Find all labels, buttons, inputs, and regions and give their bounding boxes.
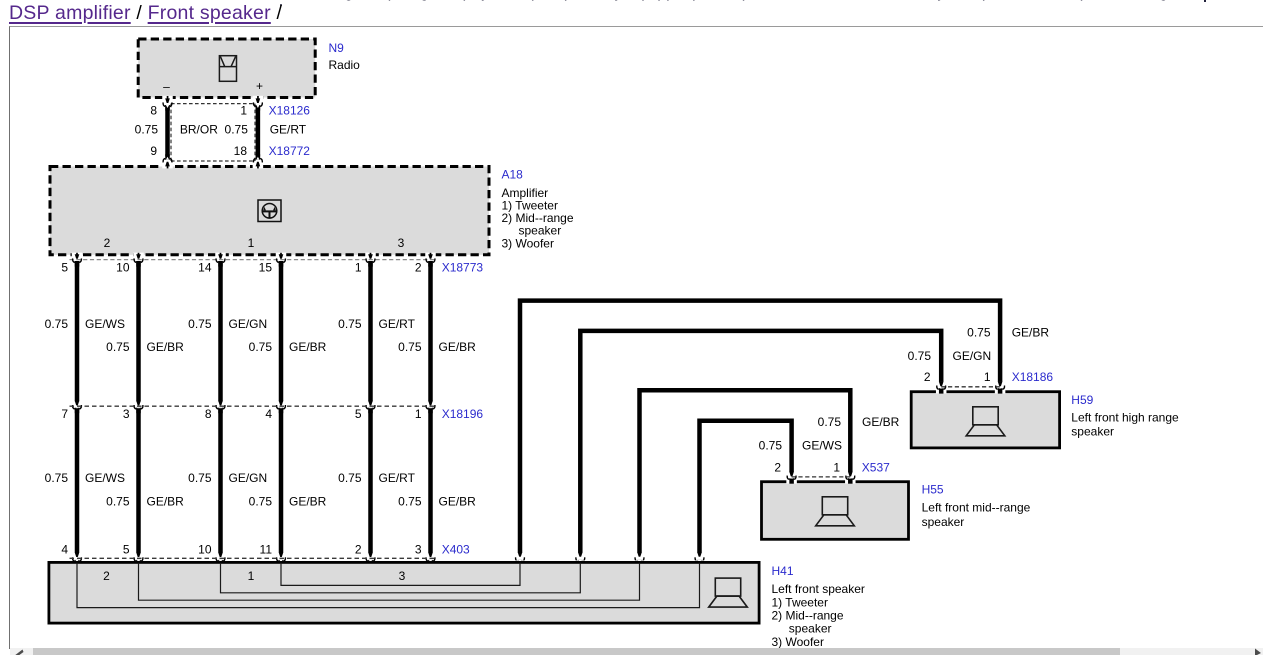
svg-text:1: 1 [240,104,247,118]
svg-text:0.75: 0.75 [398,340,422,354]
svg-text:0.75: 0.75 [338,317,362,331]
svg-text:H41: H41 [772,564,794,578]
svg-text:0.75: 0.75 [338,471,362,485]
svg-text:5: 5 [355,407,362,421]
svg-text:GE/RT: GE/RT [379,471,416,485]
svg-text:0.75: 0.75 [398,494,422,508]
svg-text:–: – [163,79,170,93]
svg-text:1: 1 [355,260,362,274]
svg-text:X18773: X18773 [442,260,484,274]
svg-text:5: 5 [123,543,130,557]
svg-text:X18772: X18772 [269,144,311,158]
svg-text:1: 1 [248,236,255,250]
svg-text:GE/BR: GE/BR [289,340,327,354]
svg-text:X18186: X18186 [1012,370,1054,384]
svg-text:GE/RT: GE/RT [379,317,416,331]
svg-text:GE/GN: GE/GN [229,471,268,485]
svg-text:GE/BR: GE/BR [439,340,477,354]
svg-text:GE/WS: GE/WS [802,438,842,452]
svg-text:11: 11 [260,543,273,557]
svg-text:4: 4 [265,407,272,421]
svg-text:2: 2 [103,569,110,583]
svg-text:H55: H55 [922,482,944,496]
svg-text:0.75: 0.75 [45,471,69,485]
svg-text:Left front speaker: Left front speaker [772,582,865,596]
svg-text:speaker: speaker [922,515,965,529]
svg-text:2: 2 [415,260,422,274]
svg-text:0.75: 0.75 [818,415,842,429]
svg-text:1: 1 [833,460,840,474]
svg-text:GE/BR: GE/BR [147,494,185,508]
svg-text:3: 3 [415,543,422,557]
svg-text:GE/RT: GE/RT [270,122,307,136]
svg-text:Radio: Radio [329,58,361,72]
svg-text:8: 8 [150,104,157,118]
svg-text:9: 9 [150,144,157,158]
svg-text:0.75: 0.75 [249,494,273,508]
svg-text:1: 1 [984,370,991,384]
svg-text:speaker: speaker [1071,425,1114,439]
svg-text:14: 14 [198,260,212,274]
svg-text:3: 3 [123,407,130,421]
svg-text:A18: A18 [502,167,524,181]
svg-text:speaker: speaker [789,622,832,636]
svg-text:X403: X403 [442,543,470,557]
svg-text:0.75: 0.75 [908,349,932,363]
svg-text:0.75: 0.75 [759,438,783,452]
svg-text:8: 8 [205,407,212,421]
svg-text:0.75: 0.75 [45,317,69,331]
svg-text:+: + [256,79,263,93]
svg-text:7: 7 [61,407,68,421]
svg-text:GE/WS: GE/WS [85,317,125,331]
svg-text:15: 15 [259,260,273,274]
svg-text:X18196: X18196 [442,407,484,421]
svg-text:GE/BR: GE/BR [147,340,185,354]
svg-text:4: 4 [61,543,68,557]
svg-text:GE/BR: GE/BR [862,415,900,429]
svg-text:1) Tweeter: 1) Tweeter [772,595,828,609]
svg-text:2: 2 [104,236,111,250]
svg-text:GE/GN: GE/GN [953,349,992,363]
svg-text:BR/OR: BR/OR [180,122,218,136]
svg-text:GE/GN: GE/GN [229,317,268,331]
svg-text:0.75: 0.75 [106,494,130,508]
svg-text:H59: H59 [1071,393,1093,407]
svg-text:GE/BR: GE/BR [289,494,327,508]
svg-text:10: 10 [116,260,130,274]
svg-text:3: 3 [398,236,405,250]
svg-text:0.75: 0.75 [106,340,130,354]
svg-text:X18126: X18126 [269,104,311,118]
svg-text:1: 1 [248,569,255,583]
svg-text:1: 1 [415,407,422,421]
svg-text:GE/BR: GE/BR [1012,326,1050,340]
svg-text:GE/WS: GE/WS [85,471,125,485]
svg-text:0.75: 0.75 [225,122,249,136]
svg-text:0.75: 0.75 [249,340,273,354]
svg-text:5: 5 [61,260,68,274]
svg-text:2: 2 [924,370,931,384]
svg-text:Left front mid--range: Left front mid--range [922,501,1031,515]
svg-text:2: 2 [355,543,362,557]
svg-text:0.75: 0.75 [967,326,991,340]
svg-text:10: 10 [198,543,212,557]
svg-text:0.75: 0.75 [188,471,212,485]
svg-text:2: 2 [774,460,781,474]
svg-text:3) Woofer: 3) Woofer [772,635,824,649]
svg-text:N9: N9 [329,41,345,55]
svg-text:Left front high range: Left front high range [1071,410,1179,424]
svg-text:0.75: 0.75 [188,317,212,331]
svg-text:0.75: 0.75 [135,122,159,136]
svg-text:GE/BR: GE/BR [439,494,477,508]
svg-text:3) Woofer: 3) Woofer [502,236,554,250]
svg-text:3: 3 [399,569,406,583]
svg-text:2) Mid--range: 2) Mid--range [772,609,844,623]
svg-text:18: 18 [234,144,248,158]
svg-text:X537: X537 [862,460,890,474]
